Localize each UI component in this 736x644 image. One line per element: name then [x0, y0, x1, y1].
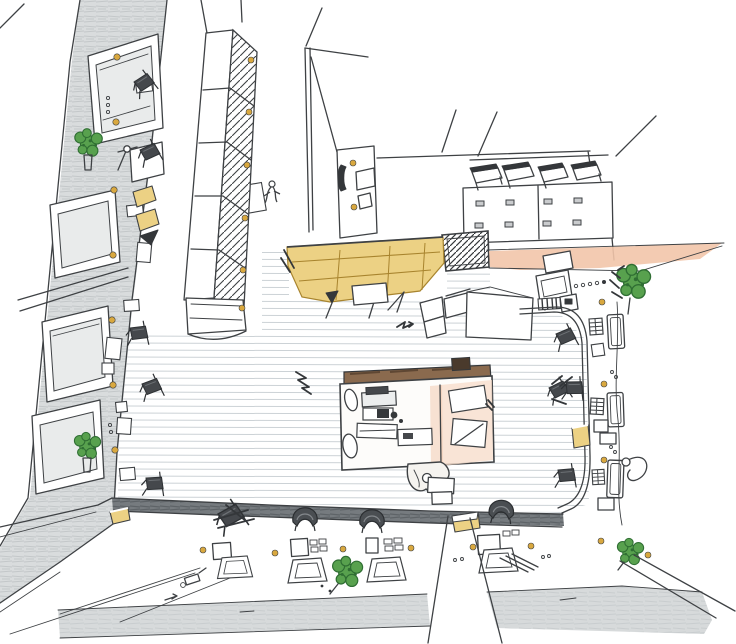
aerial-plaza-sketch: [0, 0, 736, 644]
ramp-wedge: [452, 512, 480, 532]
service-hatch: [442, 231, 489, 271]
sketch-svg: [0, 0, 736, 644]
road-right: [487, 586, 712, 634]
yellow-crate: [572, 425, 590, 448]
crates: [428, 477, 455, 504]
storefront-window: [42, 306, 113, 402]
storefront-window: [50, 190, 120, 278]
